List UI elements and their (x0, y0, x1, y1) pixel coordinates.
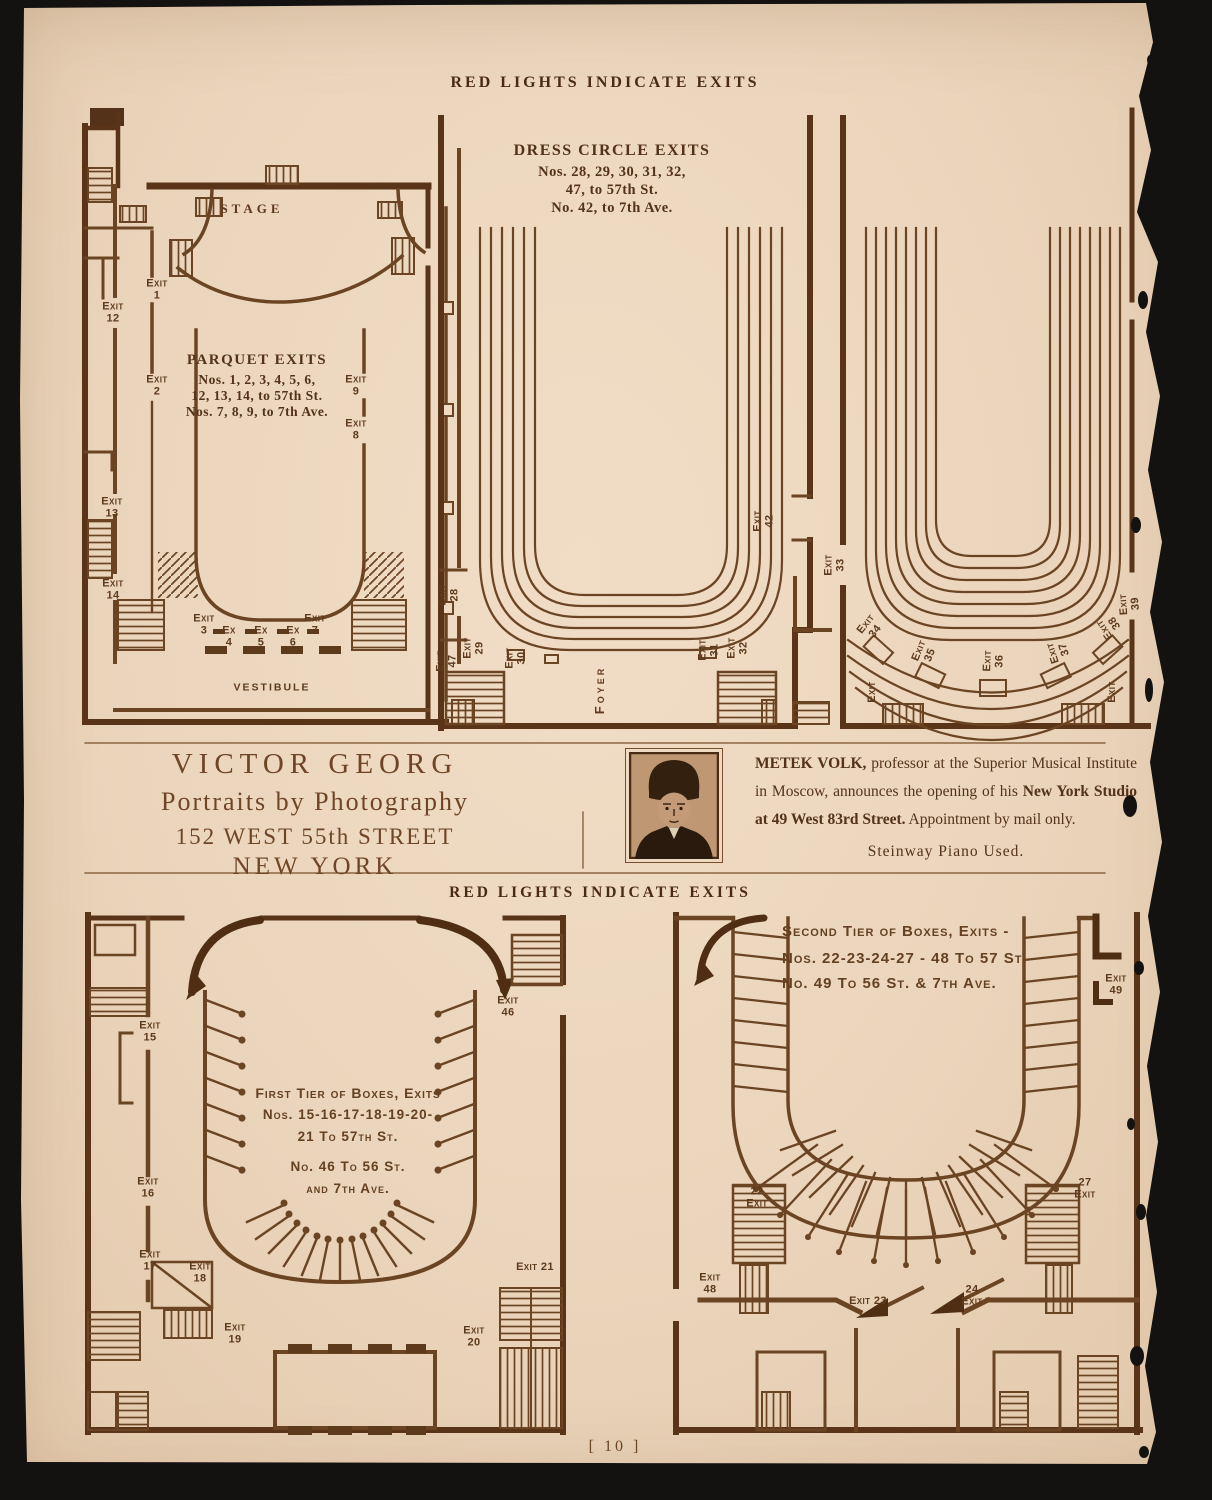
scanned-program-page: RED LIGHTS INDICATE EXITS RED LIGHTS IND… (0, 0, 1212, 1500)
parquet-line: Nos. 1, 2, 3, 4, 5, 6, (162, 372, 352, 388)
exit-label-46: Exit 46 (497, 995, 518, 1018)
exit-label-5: Ex 5 (254, 625, 267, 648)
exit-label-42: Exit 42 (752, 510, 775, 531)
exit-label-24: 24 Exit (961, 1284, 982, 1307)
metek-volk-paragraph: METEK VOLK, professor at the Superior Mu… (755, 750, 1137, 834)
first-tier-line: and 7th Ave. (238, 1178, 458, 1200)
exit-label-27: 27 Exit (1074, 1177, 1095, 1200)
exit-label-4: Ex 4 (222, 625, 235, 648)
exit-label-13: Exit 13 (101, 496, 122, 519)
balcony-linework (793, 110, 1148, 740)
exit-label-17: Exit 17 (139, 1249, 160, 1272)
exit-label-18: Exit 18 (189, 1261, 210, 1284)
metek-volk-ad: METEK VOLK, professor at the Superior Mu… (755, 750, 1137, 866)
parquet-title: PARQUET EXITS (162, 352, 352, 369)
exit-label-15: Exit 15 (139, 1020, 160, 1043)
victor-georg-city: NEW YORK (115, 853, 515, 881)
exit-label-22: 22 Exit (746, 1186, 767, 1209)
metek-volk-text2: Appointment by mail only. (906, 811, 1076, 828)
victor-georg-ad: VICTOR GEORG Portraits by Photography 15… (115, 748, 515, 881)
first-tier-title: First Tier of Boxes, Exits (238, 1082, 458, 1104)
portrait-illustration (629, 752, 719, 859)
first-tier-line: 21 To 57th St. (238, 1126, 458, 1148)
exit-label-36: Exit 36 (982, 650, 1006, 672)
exit-label-3: Exit 3 (193, 613, 214, 636)
dress-circle-line: Nos. 28, 29, 30, 31, 32, (502, 163, 722, 181)
dress-circle-line: No. 42, to 7th Ave. (502, 199, 722, 217)
first-tier-line: No. 46 To 56 St. (238, 1156, 458, 1178)
exit-label-49: Exit 49 (1105, 973, 1126, 996)
parquet-line: 12, 13, 14, to 57th St. (162, 388, 352, 404)
victor-georg-name: VICTOR GEORG (115, 748, 515, 781)
portrait-photo (625, 748, 723, 863)
second-tier-text: Second Tier of Boxes, Exits - Nos. 22-23… (782, 918, 1112, 996)
exit-label-19: Exit 19 (224, 1322, 245, 1345)
first-tier-line: Nos. 15-16-17-18-19-20- (238, 1104, 458, 1126)
page-number: [ 10 ] (555, 1438, 675, 1456)
exit-label-32: Exit 32 (726, 637, 749, 658)
dress-circle-line: 47, to 57th St. (502, 181, 722, 199)
exit-label-39: Exit 39 (1118, 593, 1143, 616)
exit-label-2: Exit 2 (146, 374, 167, 397)
exit-label-20: Exit 20 (463, 1325, 484, 1348)
steinway-note: Steinway Piano Used. (755, 838, 1137, 866)
exit-label-1: Exit 1 (146, 278, 167, 301)
parquet-exits-text: PARQUET EXITS Nos. 1, 2, 3, 4, 5, 6, 12,… (162, 352, 352, 420)
exit-label-47: Exit 47 (435, 650, 458, 671)
exit-label-16: Exit 16 (137, 1176, 158, 1199)
exit-label-23: Exit 23 (849, 1296, 887, 1308)
metek-volk-name: METEK VOLK, (755, 755, 866, 772)
parquet-line: Nos. 7, 8, 9, to 7th Ave. (162, 404, 352, 420)
victor-georg-line: Portraits by Photography (115, 787, 515, 817)
exit-label-12: Exit 12 (102, 301, 123, 324)
second-tier-line: No. 49 To 56 St. & 7th Ave. (782, 972, 1112, 996)
vestibule-label: VESTIBULE (234, 682, 311, 693)
exit-label-31: Exit 31 (697, 639, 720, 660)
exit-label-30: Exit 30 (504, 647, 527, 668)
exit-label-29: Exit 29 (462, 637, 485, 658)
middle-header: RED LIGHTS INDICATE EXITS (400, 884, 800, 902)
first-tier-text: First Tier of Boxes, Exits Nos. 15-16-17… (238, 1082, 458, 1200)
stage-label: STAGE (220, 202, 283, 216)
exit-label-br: Exit (1107, 681, 1119, 702)
exit-label-7: Exit 7 (304, 613, 325, 636)
exit-label-6: Ex 6 (286, 625, 299, 648)
exit-label-bl: Exit (867, 681, 879, 702)
dress-circle-text: DRESS CIRCLE EXITS Nos. 28, 29, 30, 31, … (502, 142, 722, 217)
exit-label-21: Exit 21 (516, 1262, 554, 1274)
exit-label-33: Exit 33 (823, 554, 846, 575)
second-tier-line: Nos. 22-23-24-27 - 48 To 57 St (782, 946, 1112, 972)
foyer-label: Foyer (593, 666, 607, 714)
exit-label-48: Exit 48 (699, 1272, 720, 1295)
exit-label-28: Exit 28 (437, 584, 460, 605)
dress-circle-title: DRESS CIRCLE EXITS (502, 142, 722, 160)
top-header: RED LIGHTS INDICATE EXITS (405, 74, 805, 92)
exit-label-9: Exit 9 (345, 374, 366, 397)
victor-georg-address: 152 WEST 55th STREET (115, 824, 515, 850)
exit-label-14: Exit 14 (102, 578, 123, 601)
second-tier-title: Second Tier of Boxes, Exits - (782, 918, 1112, 946)
exit-label-8: Exit 8 (345, 418, 366, 441)
